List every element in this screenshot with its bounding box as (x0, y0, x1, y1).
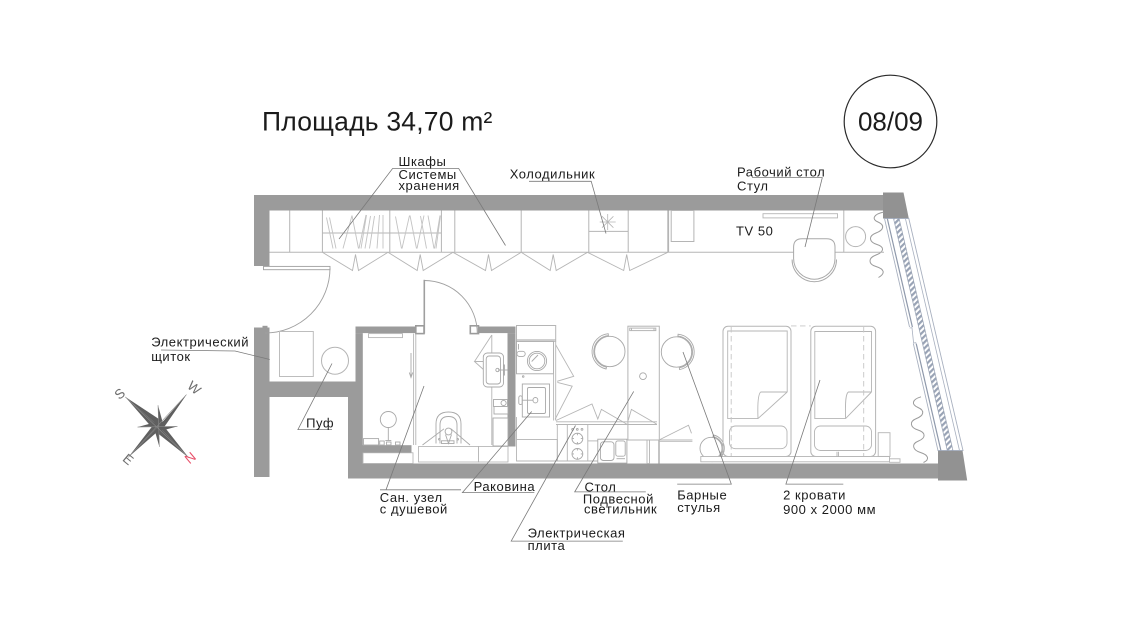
svg-text:Пуф: Пуф (306, 416, 334, 431)
svg-text:Электрический: Электрический (151, 335, 249, 350)
svg-text:стулья: стулья (677, 500, 721, 515)
svg-text:E: E (120, 451, 137, 468)
svg-text:Рабочий стол: Рабочий стол (737, 165, 825, 180)
svg-text:Раковина: Раковина (474, 479, 536, 494)
svg-text:08/09: 08/09 (858, 107, 923, 137)
svg-text:2 кровати: 2 кровати (783, 488, 846, 503)
svg-text:Холодильник: Холодильник (510, 166, 596, 181)
svg-text:хранения: хранения (399, 178, 460, 193)
svg-text:светильник: светильник (584, 502, 657, 517)
svg-text:плита: плита (528, 538, 566, 553)
svg-text:900 x 2000 мм: 900 x 2000 мм (783, 502, 876, 517)
svg-text:щиток: щиток (151, 349, 190, 364)
svg-text:с душевой: с душевой (380, 502, 448, 517)
svg-text:S: S (112, 385, 129, 402)
svg-text:TV 50: TV 50 (736, 223, 773, 238)
svg-text:W: W (184, 378, 204, 398)
svg-text:N: N (182, 449, 199, 467)
svg-text:Стул: Стул (737, 179, 769, 194)
svg-text:Площадь 34,70 m²: Площадь 34,70 m² (262, 107, 493, 137)
